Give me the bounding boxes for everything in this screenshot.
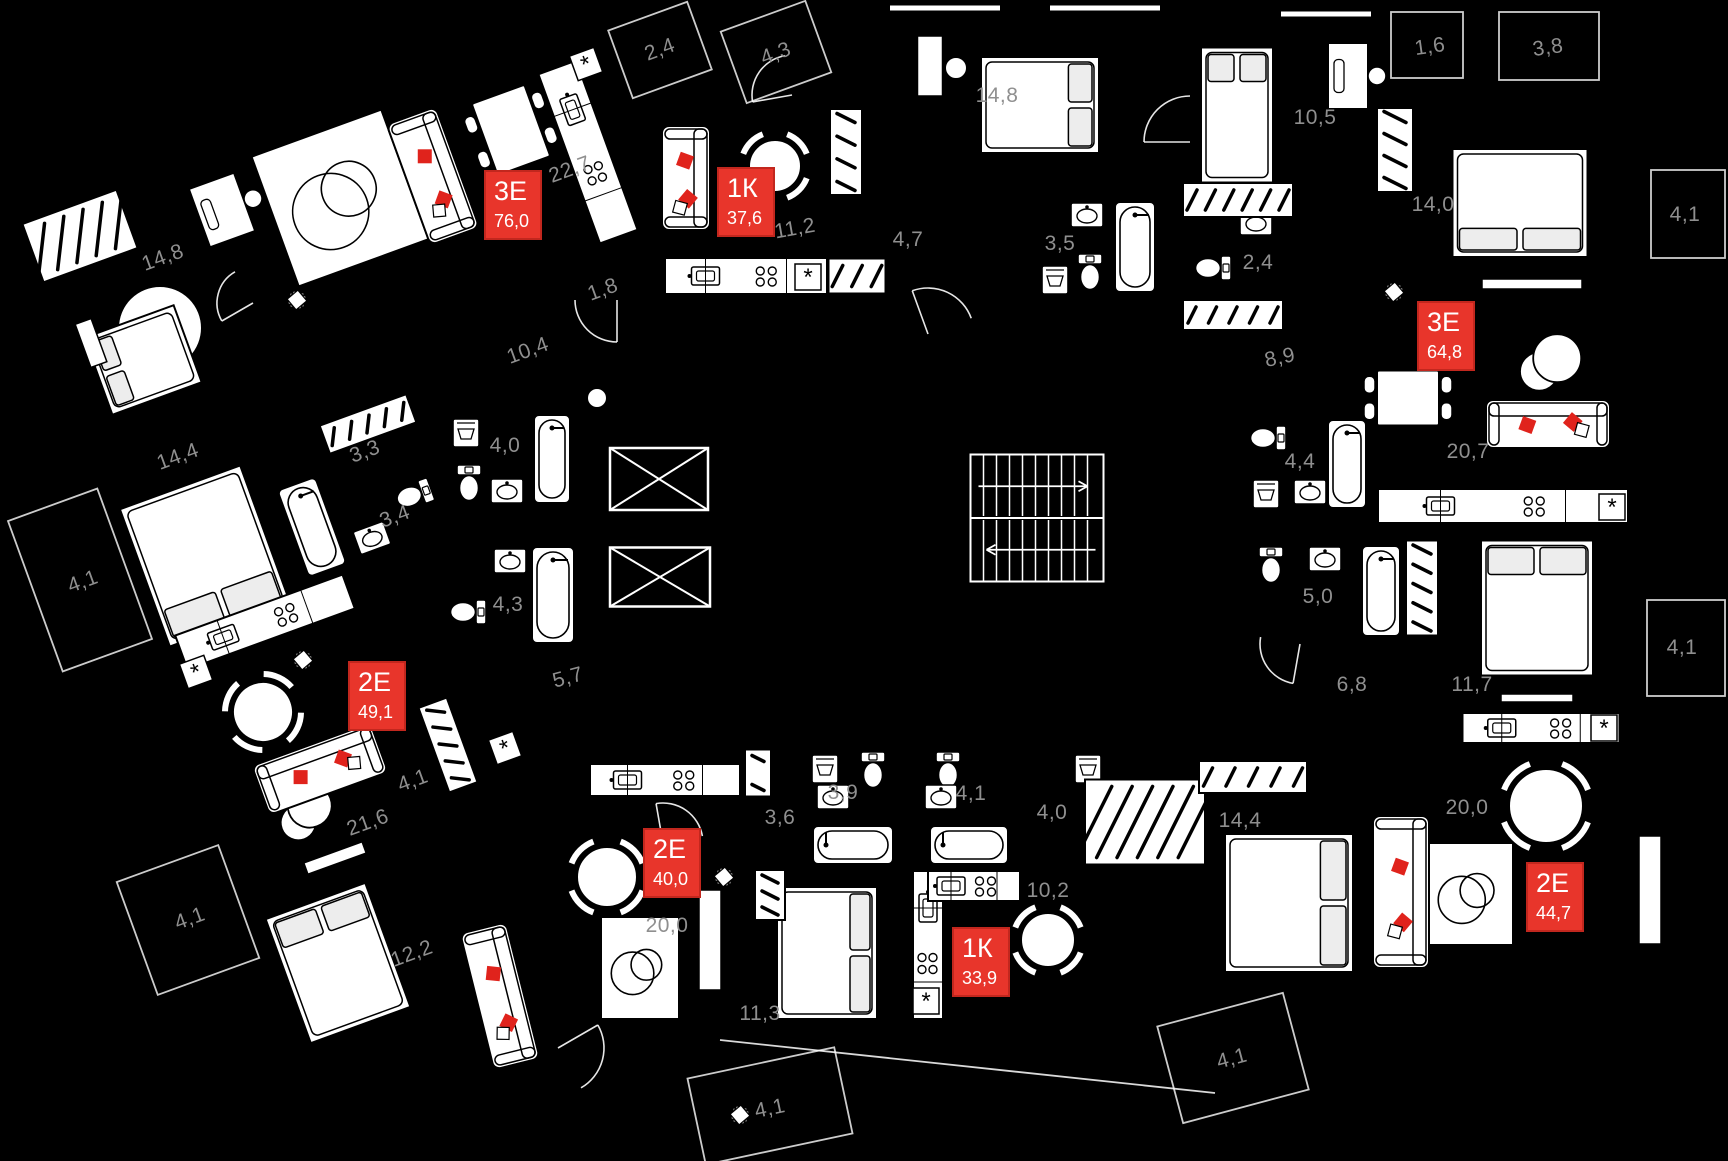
washer-icon [453,419,479,447]
room-area-label: 4,7 [893,228,924,252]
apartment-type: 1К [727,175,765,202]
star-icon: * [913,988,939,1015]
circles-icon [270,777,340,845]
apartment-area: 64,8 [1427,343,1465,363]
arc-icon [575,300,617,342]
room-area-label: 3,4 [376,500,413,533]
star-icon: * [1599,494,1625,521]
plant-icon [714,867,734,887]
apartment-type: 3Е [494,178,532,205]
bed-icon [120,466,290,647]
desk-icon [1328,43,1386,109]
sofa-icon [387,107,480,245]
apartment-type: 2Е [1536,870,1574,897]
apartment-badge[interactable]: 1К37,6 [717,167,775,237]
room-area-label: 11,2 [773,214,818,245]
wardrobe-icon [1183,300,1283,330]
apartment-badge[interactable]: 3Е76,0 [484,170,542,240]
bathtub-icon [277,477,346,577]
plant-icon [730,1105,750,1125]
svg-text:*: * [921,988,930,1015]
floor-plan: ******* 14,822,710,41,82,44,311,214,84,7… [0,0,1728,1161]
room-area-label: 3,5 [1045,232,1076,256]
rug-icon [253,111,427,285]
wardrobe-icon [1183,183,1293,217]
room-area-label: 4,3 [757,37,794,70]
toilet-icon [861,752,885,788]
strip-icon [1281,12,1371,17]
plant-icon [293,650,313,670]
toilet-icon [1259,547,1283,583]
kitchen-icon [928,871,1020,901]
bed-icon [266,883,411,1043]
sink-icon [1309,547,1341,571]
room-area-label: 10,4 [504,332,552,369]
apartment-badge[interactable]: 2Е49,1 [348,661,406,731]
kitchen-icon [538,61,637,244]
toilet-icon [451,600,487,624]
room-area-label: 10,5 [1294,106,1337,130]
circle-icon [587,388,607,408]
washer-icon [1253,480,1279,508]
room-area-label: 14,8 [139,239,187,276]
room-area-label: 10,2 [1027,879,1070,903]
arc-icon [1144,96,1190,142]
room-area-label: 22,7 [546,151,594,188]
sofa-icon [1373,816,1429,968]
room-area-label: 14,4 [1219,809,1262,833]
room-area-label: 4,1 [956,782,987,806]
wardrobe-icon [745,750,771,797]
apartment-area: 40,0 [653,870,691,890]
wardrobe-icon [829,259,886,294]
toilet-icon [457,465,481,501]
room-area-label: 14,4 [154,438,202,475]
room-area-label: 4,1 [1670,203,1701,227]
arc-icon [558,1025,621,1088]
tv-icon [1501,694,1573,702]
wardrobe-icon [20,189,141,284]
apartment-type: 1К [962,935,1000,962]
toilet-icon [1251,426,1287,450]
circles-icon [1520,334,1581,390]
stairs-icon [971,455,1104,582]
room-area-label: 4,4 [1285,450,1316,474]
elevator-icon [610,448,708,510]
sofa-icon [1486,400,1610,448]
room-area-label: 20,7 [1447,440,1490,464]
sink-icon [1240,211,1272,235]
washer-icon [812,755,838,783]
bed-icon [1201,48,1273,183]
arc-icon [912,275,971,334]
rtable-icon [1504,764,1588,848]
room-area-label: 4,3 [493,593,524,617]
kitchen-icon [1378,489,1628,523]
kitchen-icon [913,871,943,1019]
tv-icon [75,318,107,367]
bed-icon [1453,149,1588,257]
star-icon: * [488,731,522,765]
rtable-icon [572,842,643,913]
apartment-area: 44,7 [1536,904,1574,924]
sink-icon [1071,203,1103,227]
desk-icon [189,167,272,248]
star-icon: * [569,47,603,81]
strip-icon [890,6,1000,11]
room-area-label: 8,9 [1262,343,1297,373]
room-area-label: 4,0 [490,434,521,458]
kitchen-icon [175,575,355,670]
room-area-label: 14,8 [976,84,1019,108]
apartment-area: 49,1 [358,703,396,723]
washer-icon [1042,266,1068,294]
bathtub-icon [930,826,1008,864]
apartment-type: 2Е [653,836,691,863]
rtable-icon [218,667,309,758]
bed-icon [1225,834,1353,972]
svg-text:*: * [496,734,514,763]
room-area-label: 2,4 [1243,251,1274,275]
room-area-label: 11,3 [739,1002,780,1026]
room-area-label: 3,8 [1531,34,1565,62]
apartment-area: 37,6 [727,209,765,229]
room-area-label: 4,1 [1214,1043,1250,1074]
apartment-badge[interactable]: 3Е64,8 [1417,301,1475,371]
circle-icon [945,57,967,79]
room-area-label: 1,6 [1413,33,1447,61]
room-area-label: 4,1 [394,764,431,797]
bathtub-icon [1115,202,1155,292]
room-area-label: 20,0 [1446,796,1489,820]
elevator-icon [610,548,710,607]
star-icon: * [179,655,213,689]
apartment-badge[interactable]: 1К33,9 [952,927,1010,997]
kitchen-icon [665,258,827,294]
svg-text:*: * [803,264,812,291]
wardrobe-icon [755,870,785,920]
plant-icon [1384,282,1404,302]
room-area-label: 3,6 [765,806,796,830]
pillar-icon [918,36,943,96]
room-area-label: 20,0 [646,914,689,938]
sink-icon [925,785,957,809]
room-area-label: 3,3 [346,435,383,468]
bathtub-icon [1328,420,1366,508]
room-area-label: 14,0 [1412,193,1455,217]
room-area-label: 5,7 [550,662,586,693]
tv-icon [699,890,721,990]
toilet-icon [1196,256,1232,280]
room-area-label: 4,1 [752,1094,787,1124]
arc-icon [204,272,253,321]
sofa-icon [662,126,710,230]
apartment-area: 76,0 [494,212,532,232]
sink-icon [1294,480,1326,504]
washer-icon [1075,755,1101,783]
toilet-icon [1078,254,1102,290]
wardrobe-icon [830,109,862,195]
tv-icon [304,842,366,874]
room-area-label: 3,9 [828,781,859,805]
bathtub-icon [532,547,574,643]
kitchen-icon [1463,713,1620,743]
room-area-label: 1,8 [584,273,621,306]
bed-icon [1481,541,1593,676]
rtable-icon [1015,907,1080,972]
strip-icon [1050,6,1160,11]
arc-icon [1254,637,1300,683]
bed-icon [84,305,201,415]
bathtub-icon [1362,546,1400,636]
bed-icon [777,887,877,1019]
plan-drawing: ******* [0,0,1728,1161]
room-area-label: 4,1 [171,902,208,935]
room-area-label: 4,0 [1037,801,1068,825]
room-area-label: 12,2 [388,935,436,972]
svg-text:*: * [1607,494,1616,521]
svg-text:*: * [187,658,205,687]
circle-icon [118,286,202,370]
room-area-label: 6,8 [1337,673,1368,697]
room-area-label: 21,6 [344,804,392,841]
svg-text:*: * [577,50,595,79]
room-area-label: 11,7 [1451,673,1492,697]
bathtub-icon [813,826,893,864]
sofa-icon [252,723,388,815]
room-area-label: 4,1 [64,565,101,598]
wardrobe-icon [1377,108,1413,192]
wardrobe-icon [1076,780,1214,865]
plant-icon [287,290,307,310]
apartment-badge[interactable]: 2Е44,7 [1526,862,1584,932]
star-icon: * [795,264,821,291]
apartment-area: 33,9 [962,969,1000,989]
sink-icon [491,479,523,503]
bathtub-icon [534,415,570,503]
star-icon: * [1591,715,1617,742]
room-area-label: 4,1 [1667,636,1698,660]
kitchen-icon [590,764,740,796]
table-icon [1364,371,1452,426]
apartment-badge[interactable]: 2Е40,0 [643,828,701,898]
sofa-icon [460,922,539,1069]
room-area-label: 5,0 [1303,585,1334,609]
sink-icon [494,549,526,573]
rug-icon [1428,844,1512,944]
room-area-label: 2,4 [641,33,678,66]
tv-icon [1639,836,1661,944]
apartment-type: 3Е [1427,309,1465,336]
tv-icon [1482,279,1582,289]
wardrobe-icon [1199,761,1307,793]
svg-text:*: * [1599,715,1608,742]
apartment-type: 2Е [358,669,396,696]
wardrobe-icon [1406,541,1438,636]
